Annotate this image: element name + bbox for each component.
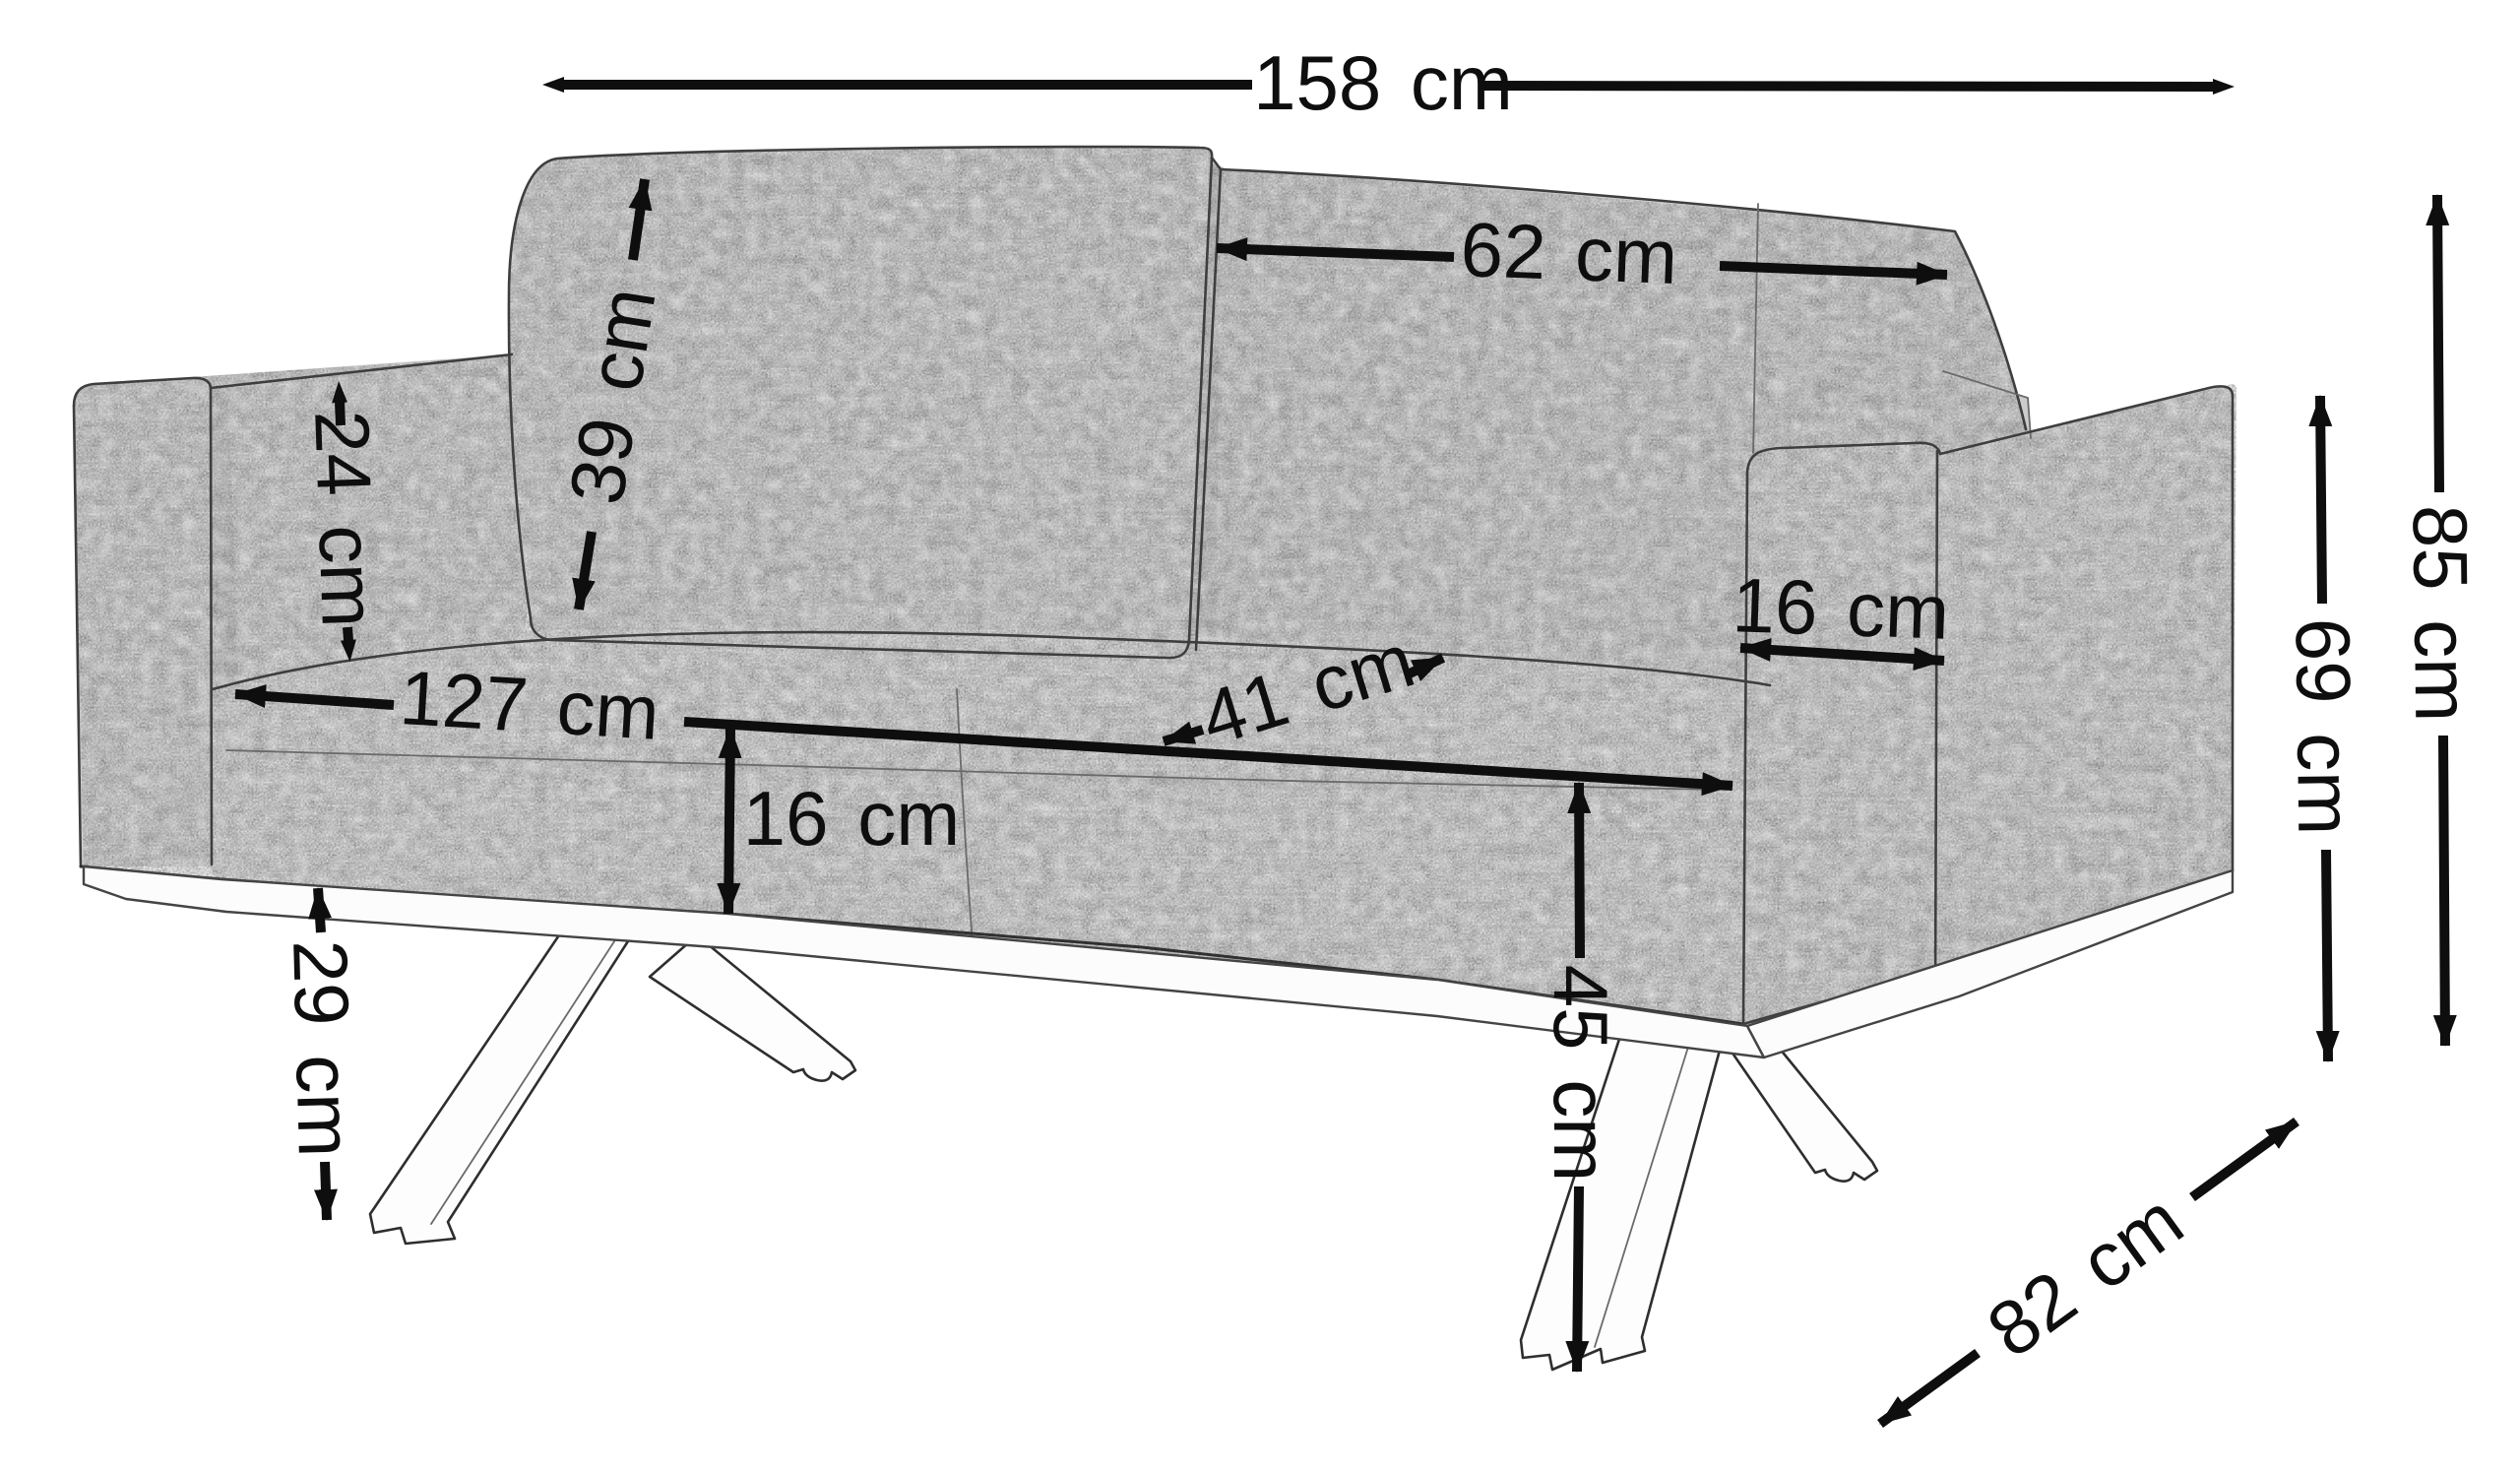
svg-text:45 cm: 45 cm (1538, 965, 1624, 1182)
svg-text:127 cm: 127 cm (398, 654, 662, 756)
svg-text:62 cm: 62 cm (1459, 206, 1678, 300)
svg-text:158 cm: 158 cm (1253, 39, 1513, 126)
svg-text:16 cm: 16 cm (1731, 561, 1950, 656)
svg-text:85 cm: 85 cm (2397, 504, 2487, 722)
svg-text:29 cm: 29 cm (277, 939, 369, 1159)
svg-text:16 cm: 16 cm (743, 775, 960, 862)
svg-text:24 cm: 24 cm (298, 409, 393, 628)
svg-text:69 cm: 69 cm (2280, 617, 2369, 835)
